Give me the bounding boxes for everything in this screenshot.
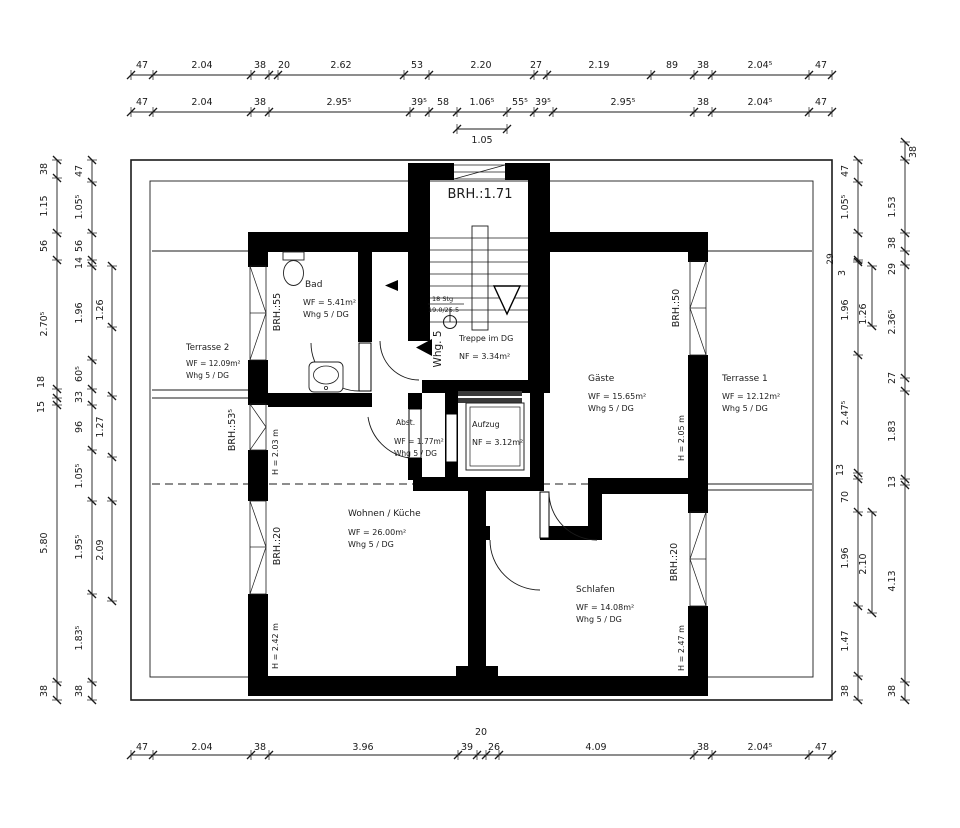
dim-value: 15 (36, 401, 47, 413)
stair-ratio-note: 19.0/25.5 (428, 306, 459, 314)
bad-swing-marker-icon (385, 280, 398, 291)
dim-value: 38 (887, 237, 898, 249)
room-terrasse1-area: WF = 12.12m² (722, 392, 780, 401)
room-bad-area: WF = 5.41m² (303, 298, 356, 307)
room-abst-area: WF = 1.77m² (394, 437, 444, 446)
room-terrasse2-name: Terrasse 2 (185, 343, 229, 353)
dim-value: 38 (254, 742, 266, 753)
dim-value: 13 (835, 464, 846, 476)
room-treppe-name: Treppe im DG (458, 334, 513, 343)
room-gaeste-unit: Whg 5 / DG (588, 404, 634, 413)
dim-value: 47 (136, 60, 148, 71)
room-aufzug-name: Aufzug (472, 420, 500, 429)
dim-value: 47 (815, 742, 827, 753)
dim-value: 38 (697, 60, 709, 71)
dim-chain-left-mid: 471.05⁵56141.9660⁵33961.05⁵1.95⁵1.83⁵38 (74, 156, 97, 704)
dim-value: 2.19 (588, 60, 609, 71)
bad-door-leaf (359, 343, 371, 391)
dim-value: 38 (39, 163, 50, 175)
dim-value: 47 (840, 165, 851, 177)
entry-door-arc (380, 341, 419, 380)
room-wohnen-name: Wohnen / Küche (348, 509, 421, 519)
dim-value: 39⁵ (411, 97, 427, 108)
dim-value: 1.95⁵ (74, 534, 85, 559)
sill-label-wohnen: BRH.:20 (272, 527, 283, 565)
room-terrasse1-unit: Whg 5 / DG (722, 404, 768, 413)
dim-value: 38 (840, 685, 851, 697)
height-label-gaeste: H = 2.05 m (677, 415, 686, 461)
dim-value: 13 (887, 476, 898, 488)
dim-value: 1.83⁵ (74, 625, 85, 650)
dim-chain-top-row1: 472.0438202.62532.20272.1989382.04⁵47 (127, 60, 836, 80)
floor-plan-page: BRH.:1.71BadWF = 5.41m²Whg 5 / DGTerrass… (0, 0, 960, 828)
dim-chain-left-outer: 381.15562.70⁵18155.8038 (36, 156, 62, 704)
dim-value: 1.96 (74, 302, 85, 323)
dim-value: 38 (254, 60, 266, 71)
dim-value: 70 (840, 491, 851, 503)
dim-chain-right-inner-sub-b: 2.10 (858, 508, 877, 617)
room-terrasse1-name: Terrasse 1 (721, 374, 768, 384)
stair-stringer (472, 226, 488, 330)
dim-value: 38 (39, 685, 50, 697)
dim-value: 47 (136, 742, 148, 753)
room-schlafen-name: Schlafen (576, 585, 615, 595)
window-gaeste-east (690, 261, 706, 355)
dim-value: 2.04 (191, 60, 212, 71)
dim-value: 1.05⁵ (74, 463, 85, 488)
aufzug-door-leaf (446, 414, 457, 462)
schlafen-door-arc (490, 540, 540, 590)
room-abst-unit: Whg 5 / DG (394, 449, 437, 458)
dim-value: 1.96 (840, 299, 851, 320)
stairs (428, 226, 528, 330)
dim-value: 2.70⁵ (39, 311, 50, 336)
dim-value: 47 (136, 97, 148, 108)
dim-value: 2.04 (191, 742, 212, 753)
dim-value: 1.26 (858, 303, 869, 324)
toilet (283, 252, 304, 286)
dim-chain-right-inner-sub-a: 1.26 (858, 262, 877, 330)
dim-value: 4.09 (585, 742, 606, 753)
dim-value: 39 (461, 742, 473, 753)
dim-value: 4.13 (887, 570, 898, 591)
room-abst-name: Abst. (396, 418, 415, 427)
dim-chain-right-inner: 471.05⁵31.962.47⁵13701.961.4738 (835, 156, 863, 704)
apartment-entry-label: Whg. 5 (432, 330, 444, 367)
dim-value: 26 (488, 742, 500, 753)
floor-plan-drawing: BRH.:1.71BadWF = 5.41m²Whg 5 / DGTerrass… (0, 0, 960, 828)
window-bad-west (250, 266, 266, 360)
room-aufzug-area: NF = 3.12m² (472, 438, 523, 447)
dim-value: 56 (39, 240, 50, 252)
window-stairwell (454, 165, 505, 179)
dim-value: 14 (74, 257, 85, 269)
sill-label-schlafen: BRH.:20 (669, 543, 680, 581)
dim-value: 1.53 (887, 196, 898, 217)
dim-value: 1.27 (95, 416, 106, 437)
dim-value: 2.47⁵ (840, 400, 851, 425)
room-bad-unit: Whg 5 / DG (303, 310, 349, 319)
room-wohnen-area: WF = 26.00m² (348, 528, 406, 537)
stair-window-sill-label: BRH.:1.71 (448, 187, 513, 202)
sill-label-gaeste: BRH.:50 (671, 289, 682, 327)
dim-corner-29: 29 (826, 253, 836, 265)
window-west-2 (250, 404, 266, 450)
height-label-terrasse2: H = 2.03 m (271, 429, 280, 475)
dim-value: 38 (697, 97, 709, 108)
room-terrasse2-unit: Whg 5 / DG (186, 371, 229, 380)
dim-value: 18 (36, 376, 47, 388)
dim-value: 38 (887, 685, 898, 697)
dim-value: 1.96 (840, 547, 851, 568)
dim-value: 56 (74, 240, 85, 252)
room-treppe-area: NF = 3.34m² (459, 352, 510, 361)
elevator-cab (458, 391, 524, 470)
dim-value: 5.80 (39, 532, 50, 553)
sill-label-west2: BRH.:53⁵ (227, 409, 238, 451)
dim-value: 20 (475, 727, 487, 738)
dim-value: 1.06⁵ (470, 97, 495, 108)
dim-chain-top-sub: 1.05 (453, 124, 511, 146)
dim-value: 3.96 (352, 742, 373, 753)
dim-value: 38 (254, 97, 266, 108)
dim-value: 1.05 (471, 135, 492, 146)
stair-count-note: 18 Stg (432, 295, 453, 303)
dim-value: 55⁵ (512, 97, 528, 108)
dim-value: 2.04⁵ (748, 97, 773, 108)
sink (309, 362, 343, 392)
window-schlafen-east (690, 512, 706, 606)
dim-value: 1.05⁵ (840, 194, 851, 219)
dim-value: 3 (837, 270, 848, 276)
dim-value: 27 (887, 372, 898, 384)
hall-door-leaf (540, 492, 549, 538)
dim-value: 47 (815, 97, 827, 108)
dim-value: 96 (74, 421, 85, 433)
room-schlafen-unit: Whg 5 / DG (576, 615, 622, 624)
dim-value: 2.95⁵ (611, 97, 636, 108)
dim-chain-right-outer: 381.5338292.36⁵271.83134.1338 (887, 138, 919, 704)
height-label-wohnen: H = 2.42 m (271, 623, 280, 669)
dim-value: 1.83 (887, 420, 898, 441)
dim-value: 47 (815, 60, 827, 71)
dim-value: 2.95⁵ (327, 97, 352, 108)
dim-value: 38 (908, 146, 919, 158)
dim-value: 1.15 (39, 195, 50, 216)
room-schlafen-area: WF = 14.08m² (576, 603, 634, 612)
dim-value: 53 (411, 60, 423, 71)
dim-value: 2.36⁵ (887, 309, 898, 334)
dim-chain-bottom: 472.04383.963920264.09382.04⁵47 (127, 727, 836, 760)
room-wohnen-unit: Whg 5 / DG (348, 540, 394, 549)
room-gaeste-name: Gäste (588, 374, 615, 384)
dim-value: 38 (74, 685, 85, 697)
dim-value: 2.10 (858, 553, 869, 574)
height-label-schlafen: H = 2.47 m (677, 625, 686, 671)
window-wohnen-west (250, 501, 266, 594)
dim-chain-top-row2: 472.04382.95⁵39⁵581.06⁵55⁵39⁵2.95⁵382.04… (127, 97, 836, 117)
dim-value: 2.04⁵ (748, 60, 773, 71)
dim-value: 33 (74, 391, 85, 403)
dim-value: 60⁵ (74, 366, 85, 382)
entrance-marker-icon (416, 339, 432, 356)
dim-value: 29 (887, 263, 898, 275)
dim-value: 2.04⁵ (748, 742, 773, 753)
dim-value: 2.09 (95, 539, 106, 560)
room-gaeste-area: WF = 15.65m² (588, 392, 646, 401)
dim-value: 38 (697, 742, 709, 753)
room-terrasse2-area: WF = 12.09m² (186, 359, 241, 368)
dim-value: 27 (530, 60, 542, 71)
dim-value: 20 (278, 60, 290, 71)
room-bad-name: Bad (305, 280, 322, 290)
dim-value: 2.62 (330, 60, 351, 71)
dim-value: 39⁵ (535, 97, 551, 108)
dim-value: 1.05⁵ (74, 194, 85, 219)
dim-value: 1.26 (95, 299, 106, 320)
dim-value: 58 (437, 97, 449, 108)
dim-value: 2.04 (191, 97, 212, 108)
dim-value: 2.20 (470, 60, 491, 71)
dim-value: 1.47 (840, 630, 851, 651)
dim-value: 89 (666, 60, 678, 71)
sill-label-bad: BRH.:55 (272, 293, 283, 331)
dim-chain-left-inner: 1.261.272.09 (95, 262, 117, 605)
dim-value: 47 (74, 165, 85, 177)
